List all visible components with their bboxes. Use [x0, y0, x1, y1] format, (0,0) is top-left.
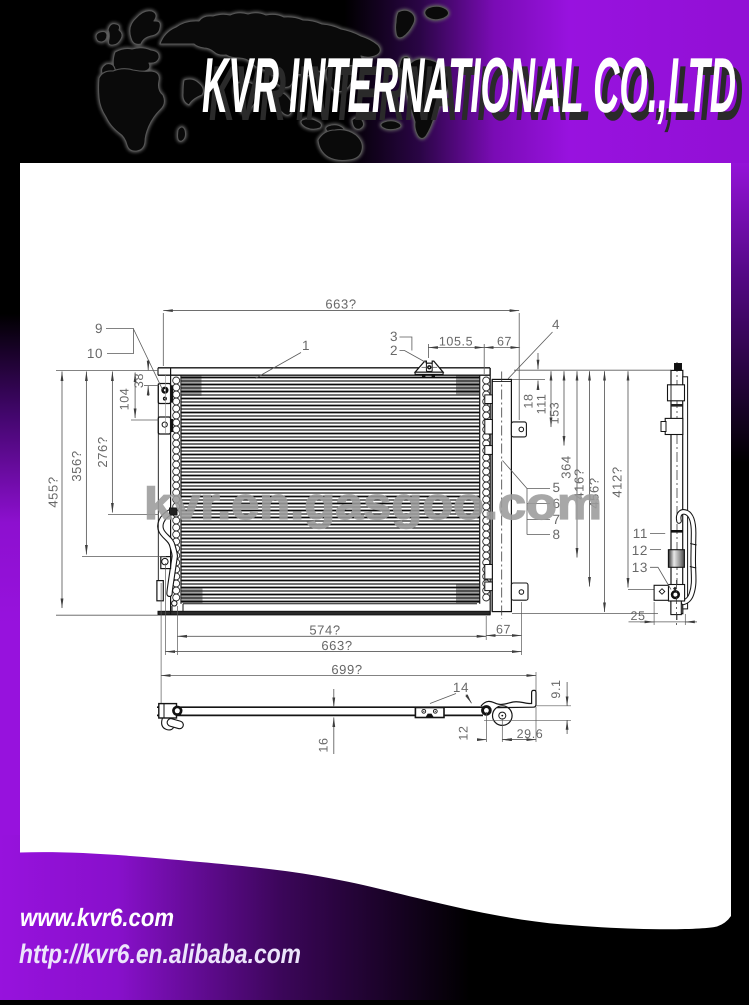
svg-text:67: 67 — [496, 623, 511, 637]
svg-text:12: 12 — [457, 725, 471, 740]
svg-text:9.1: 9.1 — [549, 679, 563, 698]
svg-text:2: 2 — [390, 343, 398, 358]
svg-text:12: 12 — [632, 543, 648, 558]
svg-text:11: 11 — [633, 526, 648, 541]
svg-text:13: 13 — [632, 560, 648, 575]
svg-text:412?: 412? — [610, 466, 625, 497]
svg-text:KVR INTERNATIONAL CO.,LTD: KVR INTERNATIONAL CO.,LTD — [202, 41, 736, 129]
svg-text:105.5: 105.5 — [439, 335, 473, 349]
svg-text:4: 4 — [552, 317, 560, 332]
svg-text:276?: 276? — [95, 436, 110, 467]
svg-text:699?: 699? — [331, 662, 362, 677]
svg-text:25: 25 — [630, 609, 645, 623]
svg-text:10: 10 — [87, 346, 103, 361]
svg-text:8: 8 — [553, 527, 561, 542]
svg-text:153: 153 — [548, 402, 562, 425]
svg-text:29.6: 29.6 — [517, 727, 544, 741]
svg-text:1: 1 — [302, 338, 310, 353]
svg-text:www.kvr6.com: www.kvr6.com — [20, 904, 174, 932]
svg-text:663?: 663? — [321, 638, 352, 653]
svg-text:574?: 574? — [309, 622, 340, 637]
svg-text:3: 3 — [390, 329, 398, 344]
svg-text:kvr.en.gasgoo.com: kvr.en.gasgoo.com — [144, 478, 602, 529]
svg-text:67: 67 — [497, 335, 512, 349]
svg-text:104: 104 — [118, 388, 132, 411]
svg-text:455?: 455? — [46, 476, 61, 507]
svg-text:http://kvr6.en.alibaba.com: http://kvr6.en.alibaba.com — [19, 939, 301, 969]
svg-text:663?: 663? — [325, 297, 356, 312]
svg-text:9: 9 — [95, 321, 103, 336]
svg-text:16: 16 — [317, 737, 331, 752]
svg-text:356?: 356? — [69, 450, 84, 481]
svg-text:111: 111 — [535, 394, 549, 415]
svg-text:18: 18 — [522, 393, 536, 408]
svg-text:38: 38 — [132, 373, 146, 388]
svg-text:14: 14 — [453, 680, 469, 695]
